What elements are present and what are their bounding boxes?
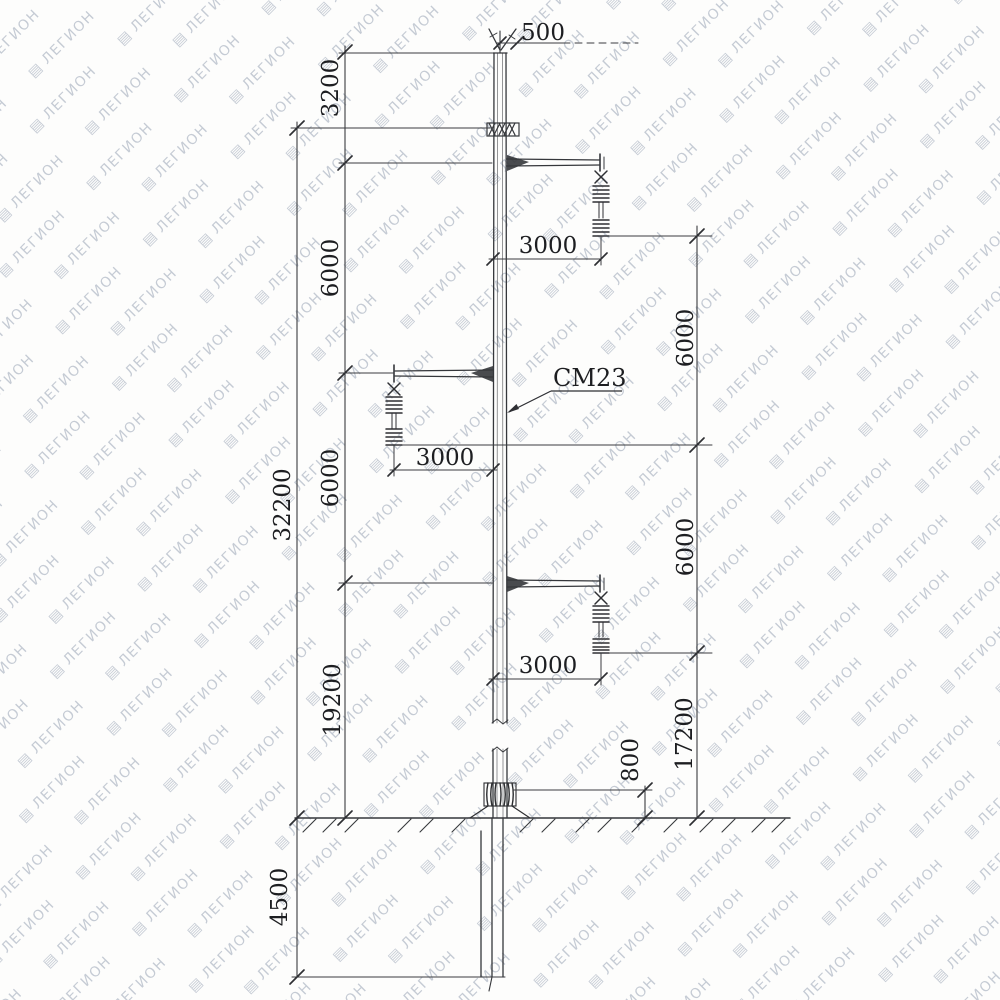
crossarm-bottom — [507, 575, 604, 592]
dim-label-lower-section: 19200 — [320, 663, 346, 736]
pole-type-leader — [507, 391, 622, 413]
dim-label-right-span-upper: 6000 — [673, 309, 699, 368]
insulator-string-top — [593, 171, 609, 236]
dim-label-lowest-wire-height: 17200 — [672, 697, 698, 770]
dimension-lines — [291, 43, 712, 977]
dim-label-crossarm-top-reach: 3000 — [519, 233, 578, 259]
pole-shaft — [470, 29, 530, 991]
dim-label-left-span-upper: 6000 — [318, 239, 344, 298]
insulator-string-middle — [386, 383, 402, 445]
crossarm-top — [507, 154, 604, 171]
dim-label-left-span-lower: 6000 — [318, 449, 344, 508]
foundation — [481, 818, 503, 991]
dim-label-top-offset: 500 — [521, 20, 565, 46]
dim-label-foundation-depth: 4500 — [267, 868, 293, 927]
dim-label-total-above-ground: 32200 — [270, 468, 296, 541]
flange-joint — [487, 123, 519, 136]
crossarm-middle — [394, 365, 493, 382]
dim-label-crossarm-middle-reach: 3000 — [416, 445, 475, 471]
ground-line — [295, 818, 790, 832]
pole-elevation-drawing: 500 3200 6000 6000 19200 32200 4500 3000… — [0, 0, 1000, 1000]
dim-label-crossarm-bottom-reach: 3000 — [519, 653, 578, 679]
insulator-string-bottom — [593, 592, 609, 653]
dim-label-peak-height: 3200 — [318, 59, 344, 118]
break-symbol — [492, 719, 508, 752]
base-clamp — [470, 783, 530, 818]
drawing-sheet: ▤ ЛЕГИОН ▤ ЛЕГИОН ▤ ЛЕГИОН ▤ ЛЕГИОН ▤ ЛЕ… — [0, 0, 1000, 1000]
pole-type-label: СМ23 — [553, 364, 626, 392]
dim-label-base-joint-height: 800 — [618, 738, 644, 782]
dim-label-right-span-lower: 6000 — [673, 518, 699, 577]
